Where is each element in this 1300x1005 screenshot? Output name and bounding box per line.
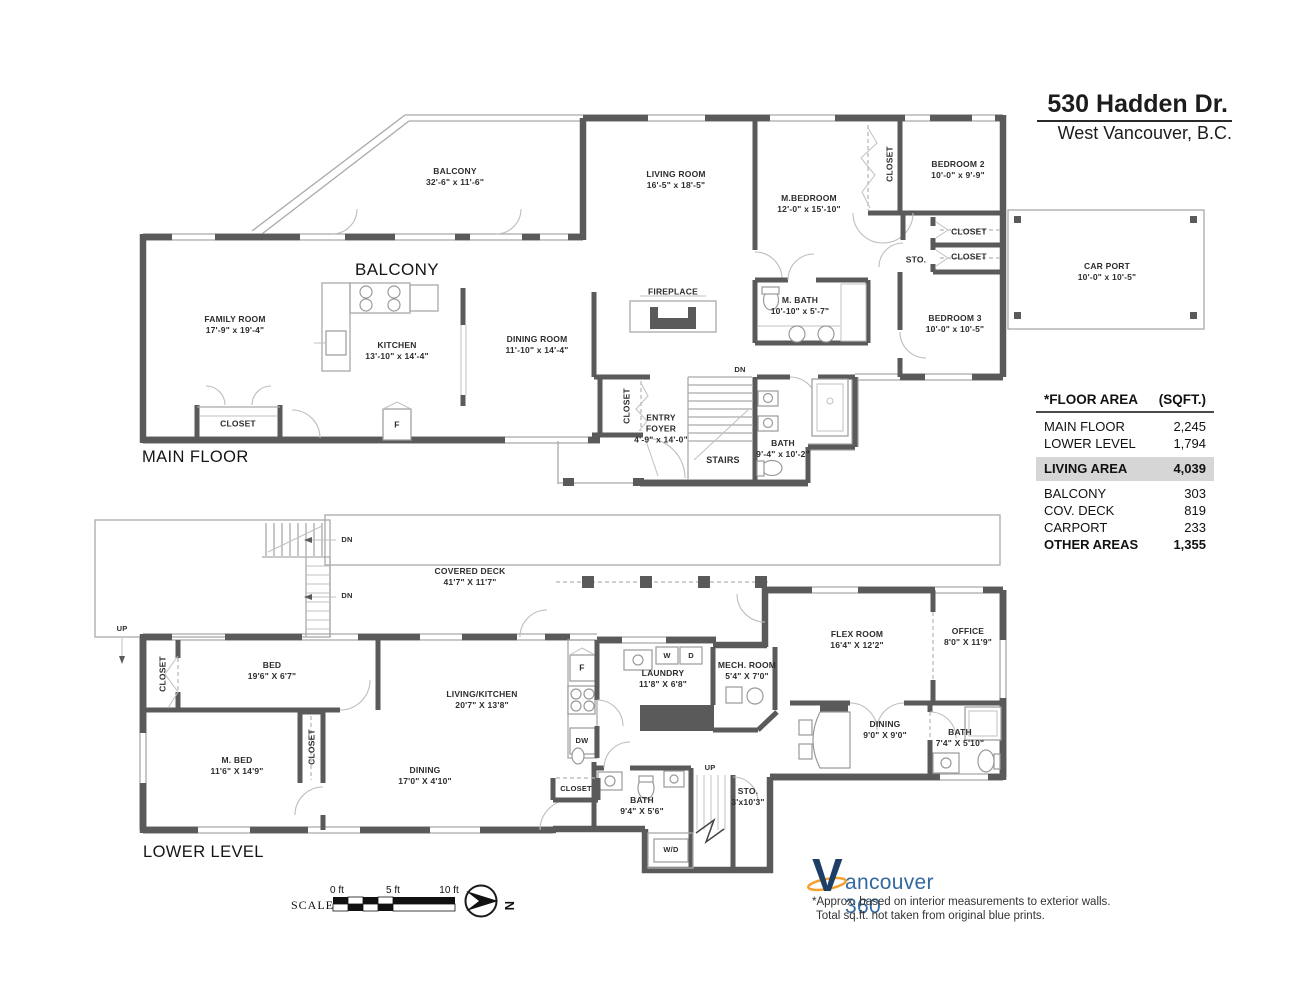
- room-label-m-bed: M. BED11'6" X 14'9": [211, 755, 264, 777]
- room-label-kitchen: KITCHEN13'-10" x 14'-4": [365, 340, 429, 362]
- room-label-bath-main: BATH9'-4" x 10'-2": [756, 438, 810, 460]
- property-address: 530 Hadden Dr.: [1037, 90, 1232, 122]
- table-row: COV. DECK 819: [1036, 502, 1214, 519]
- room-label-office: OFFICE8'0" X 11'9": [944, 626, 992, 648]
- room-label-balcony: BALCONY32'-6" x 11'-6": [426, 166, 484, 188]
- room-label-car-port: CAR PORT10'-0" x 10'-5": [1078, 261, 1137, 283]
- room-label-bed: BED19'6" X 6'7": [248, 660, 297, 682]
- room-label-living-room: LIVING ROOM16'-5" x 18'-5": [646, 169, 705, 191]
- closet-label: CLOSET: [560, 784, 592, 794]
- fridge-label: F: [579, 662, 584, 673]
- room-label-dining-lower: DINING17'0" X 4'10": [398, 765, 451, 787]
- disclaimer-line-1: *Approx. based on interior measurements …: [812, 896, 1111, 908]
- table-row: CARPORT 233: [1036, 519, 1214, 536]
- table-header-label: *FLOOR AREA: [1044, 392, 1138, 407]
- room-label-bath-right: BATH7'4" X 5'10": [936, 727, 985, 749]
- title-block: 530 Hadden Dr. West Vancouver, B.C.: [1037, 90, 1232, 144]
- room-label-mech-room: MECH. ROOM5'4" X 7'0": [717, 660, 777, 682]
- up-label: UP: [117, 624, 128, 634]
- room-label-living-kitchen: LIVING/KITCHEN20'7" X 13'8": [446, 689, 517, 711]
- room-label-covered-deck: COVERED DECK41'7" X 11'7": [435, 566, 506, 588]
- table-row: LOWER LEVEL 1,794: [1036, 435, 1214, 452]
- floorplan-page: N 530 Hadden Dr. West Vancouver, B.C. *F…: [0, 0, 1300, 1005]
- table-row: BALCONY 303: [1036, 485, 1214, 502]
- scale-tick-0: 0 ft: [330, 885, 344, 896]
- disclaimer-line-2: Total sq.ft. not taken from original blu…: [816, 910, 1045, 922]
- room-label-bath-lower: BATH9'4" X 5'6": [620, 795, 664, 817]
- vancouver360-logo: V ancouver 360: [812, 855, 843, 897]
- down-label: DN: [341, 535, 352, 545]
- room-label-dining-room: DINING ROOM11'-10" x 14'-4": [505, 334, 568, 356]
- closet-label: CLOSET: [884, 146, 895, 182]
- room-label-laundry: LAUNDRY11'8" X 6'8": [639, 668, 687, 690]
- storage-label: STO.: [906, 254, 926, 265]
- room-label-m-bath: M. BATH10'-10" x 5'-7": [771, 295, 830, 317]
- main-floor-label: MAIN FLOOR: [142, 448, 249, 467]
- washer-label: W: [663, 651, 670, 661]
- scale-bar: [333, 897, 455, 911]
- washer-dryer-label: W/D: [663, 845, 678, 855]
- closet-label: CLOSET: [157, 656, 168, 692]
- lower-level-label: LOWER LEVEL: [143, 843, 264, 862]
- closet-label: CLOSET: [951, 226, 987, 237]
- closet-label: CLOSET: [621, 388, 632, 424]
- table-header-unit: (SQFT.): [1159, 392, 1206, 407]
- closet-label: CLOSET: [951, 251, 987, 262]
- scale-tick-10: 10 ft: [439, 885, 458, 896]
- room-label-flex-room: FLEX ROOM16'4" X 12'2": [830, 629, 883, 651]
- up-label: UP: [705, 763, 716, 773]
- property-city: West Vancouver, B.C.: [1037, 123, 1232, 144]
- fireplace-label: FIREPLACE: [648, 286, 698, 297]
- north-arrow: N: [466, 886, 518, 917]
- room-label-entry-foyer: ENTRY FOYER4'-9" x 14'-0": [634, 412, 688, 445]
- scale-tick-5: 5 ft: [386, 885, 400, 896]
- table-header: *FLOOR AREA (SQFT.): [1036, 392, 1214, 413]
- dryer-label: D: [688, 651, 694, 661]
- fridge-label: F: [394, 419, 399, 430]
- floor-area-table: *FLOOR AREA (SQFT.) MAIN FLOOR 2,245 LOW…: [1036, 392, 1214, 553]
- closet-label: CLOSET: [306, 729, 317, 765]
- room-label-m-bedroom: M.BEDROOM12'-0" x 15'-10": [777, 193, 841, 215]
- svg-text:N: N: [502, 901, 517, 910]
- dishwasher-label: DW: [576, 736, 589, 746]
- closet-label: CLOSET: [220, 418, 256, 429]
- room-label-dining-right: DINING9'0" X 9'0": [863, 719, 907, 741]
- room-label-sto: STO.3'x10'3": [731, 786, 764, 808]
- logo-v: V: [812, 849, 843, 901]
- down-label: DN: [734, 365, 745, 375]
- room-label-family-room: FAMILY ROOM17'-9" x 19'-4": [204, 314, 265, 336]
- balcony-caption: BALCONY: [355, 260, 439, 280]
- down-label: DN: [341, 591, 352, 601]
- room-label-bedroom-3: BEDROOM 310'-0" x 10'-5": [926, 313, 985, 335]
- scale-label: SCALE: [291, 898, 334, 913]
- table-row-living-area: LIVING AREA 4,039: [1036, 457, 1214, 481]
- room-label-bedroom-2: BEDROOM 210'-0" x 9'-9": [931, 159, 985, 181]
- lower-level-plan: [95, 515, 1006, 873]
- table-row-other-areas: OTHER AREAS 1,355: [1036, 536, 1214, 553]
- stairs-label: STAIRS: [706, 455, 740, 467]
- table-row: MAIN FLOOR 2,245: [1036, 418, 1214, 435]
